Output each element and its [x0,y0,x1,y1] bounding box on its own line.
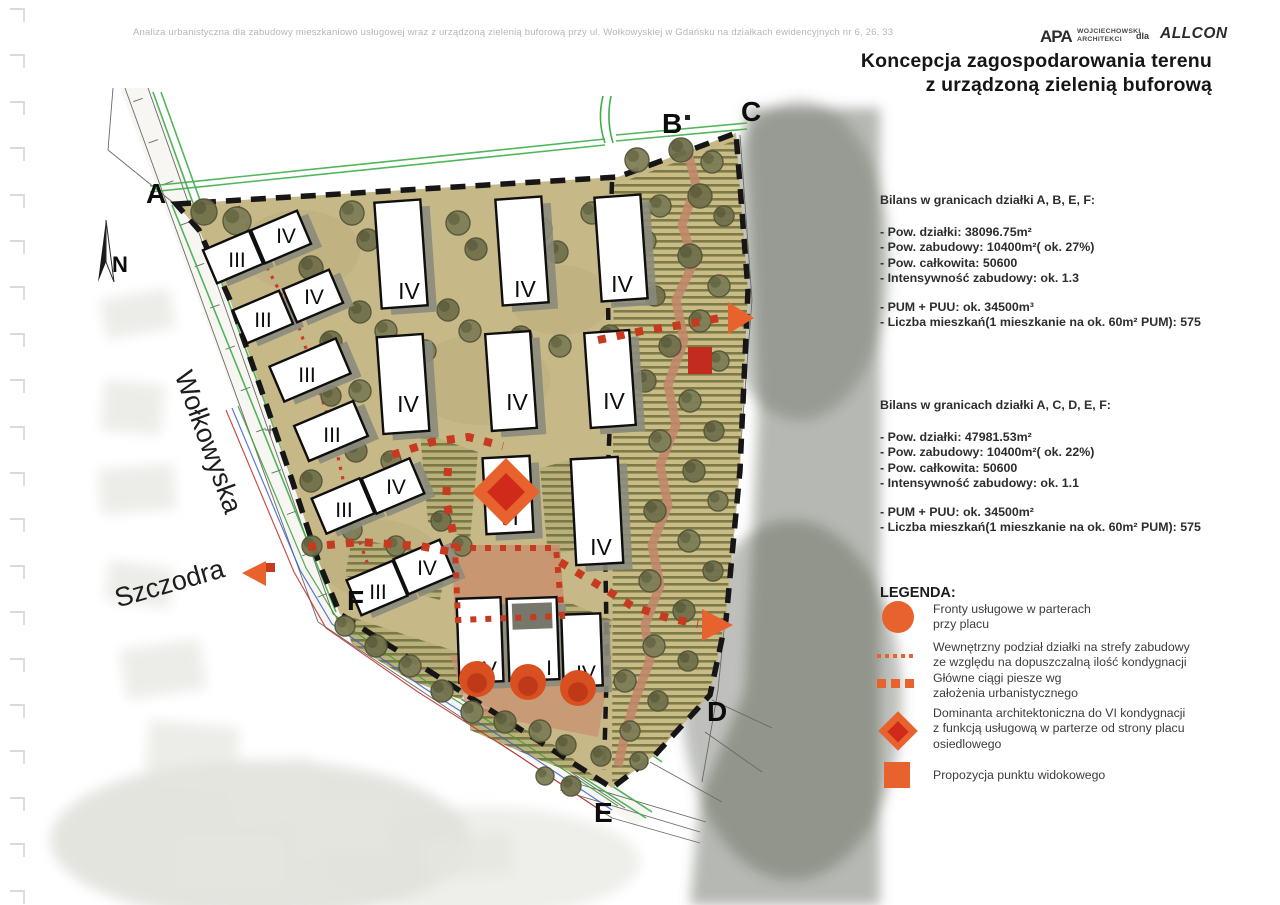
film-edge-mark [10,843,25,857]
balance-heading: Bilans w granicach działki A, C, D, E, F… [880,398,1225,413]
apa-logo-name: WOJCIECHOWSKI ARCHITEKCI [1077,28,1141,44]
building-storeys-label: IV [304,286,324,309]
apa-logo-name-line1: WOJCIECHOWSKI [1077,28,1141,36]
stat-line: - Pow. działki: 47981.53m² [880,430,1225,445]
stat-line: - Intensywność zabudowy: ok. 1.1 [880,476,1225,491]
building-storeys-label: IV [386,476,406,499]
service-front-circle-icon [882,601,914,633]
film-edge-mark [10,333,25,347]
stat-line: - Liczba mieszkań(1 mieszkanie na ok. 60… [880,315,1225,330]
film-edge-mark [10,797,25,811]
allcon-logo: ALLCON [1160,25,1228,43]
building-storeys-label: III [254,309,272,332]
stat-line: - PUM + PUU: ok. 34500m³ [880,300,1225,315]
street-label-szczodra: Szczodra [111,553,228,613]
building-storeys-label: III [335,499,353,522]
building [584,330,645,434]
stat-line: - Pow. całkowita: 50600 [880,256,1225,271]
direction-arrow [242,561,266,586]
film-edge-mark [10,426,25,440]
building-storeys-label: IV [276,225,296,248]
sheet-header-caption: Analiza urbanistyczna dla zabudowy miesz… [133,27,923,38]
film-edge-mark [10,147,25,161]
north-label: N [112,252,128,277]
viewpoint-marker [688,347,712,374]
film-edge-mark [10,101,25,115]
film-edge-mark [10,240,25,254]
dla-label: dla [1136,31,1149,41]
plot-label-B: B [662,108,682,139]
film-edge-mark [10,8,25,22]
building-storeys-label: III [228,249,246,272]
stat-line: - PUM + PUU: ok. 34500m² [880,505,1225,520]
stat-line: - Pow. zabudowy: 10400m²( ok. 27%) [880,240,1225,255]
apa-logo-name-line2: ARCHITEKCI [1077,36,1141,44]
film-edge-mark [10,704,25,718]
building-storeys-label: IV [611,271,633,297]
film-edge-mark [10,472,25,486]
stat-line: - Liczba mieszkań(1 mieszkanie na ok. 60… [880,520,1225,535]
balance-heading: Bilans w granicach działki A, B, E, F: [880,193,1225,208]
sheet-title: Koncepcja zagospodarowania terenu z urzą… [782,50,1212,97]
legend-item-dominant: Dominanta architektoniczna do VI kondygn… [933,706,1228,752]
legend-heading: LEGENDA: [880,585,956,601]
balance-block-acdef: Bilans w granicach działki A, C, D, E, F… [880,398,1225,535]
zone-division-dotted-icon [877,654,917,658]
legend-item-pedestrian-routes: Główne ciągi piesze wg założenia urbanis… [933,671,1228,702]
stat-line: - Pow. całkowita: 50600 [880,461,1225,476]
building [377,334,439,440]
plot-label-F: F [347,585,364,616]
stat-line: - Pow. zabudowy: 10400m²( ok. 22%) [880,445,1225,460]
legend-item-viewpoint: Propozycja punktu widokowego [933,768,1228,783]
building-storeys-label: IV [417,557,437,580]
viewpoint-square-icon [884,762,910,788]
building-storeys-label: I [546,657,552,680]
legend-item-service-fronts: Fronty usługowe w parterach przy placu [933,602,1228,633]
sheet-title-line1: Koncepcja zagospodarowania terenu [782,50,1212,74]
stat-line: - Pow. działki: 38096.75m² [880,225,1225,240]
sheet-title-line2: z urządzoną zielenią buforową [782,74,1212,98]
film-edge-mark [10,890,25,904]
building-storeys-label: IV [603,388,625,414]
legend-item-zone-division: Wewnętrzny podział działki na strefy zab… [933,640,1228,671]
building-storeys-label: IV [514,276,536,302]
building-storeys-label: IV [398,278,420,304]
apa-logo: APA [1040,27,1072,47]
building-storeys-label: III [369,581,387,604]
film-edge-mark [10,518,25,532]
film-edge-mark [10,286,25,300]
plot-label-C: C [741,96,761,127]
building-storeys-label: IV [506,389,528,415]
plot-label-A: A [146,178,166,209]
building-storeys-label: III [323,424,341,447]
film-edge-mark [10,194,25,208]
film-edge-mark [10,565,25,579]
building-storeys-label: IV [397,391,419,417]
pedestrian-route-dashed-icon [877,679,914,688]
plot-label-E: E [594,797,613,828]
building [485,331,546,437]
architectural-dominant-diamond-icon [878,711,918,751]
film-edge-mark [10,750,25,764]
film-edge-mark [10,379,25,393]
plot-label-D: D [707,696,727,727]
building-storeys-label: III [298,364,316,387]
film-edge-mark [10,611,25,625]
building-storeys-label: IV [590,534,612,560]
film-edge-mark [10,658,25,672]
balance-block-abef: Bilans w granicach działki A, B, E, F: -… [880,193,1225,330]
stat-line: - Intensywność zabudowy: ok. 1.3 [880,271,1225,286]
film-edge-mark [10,54,25,68]
